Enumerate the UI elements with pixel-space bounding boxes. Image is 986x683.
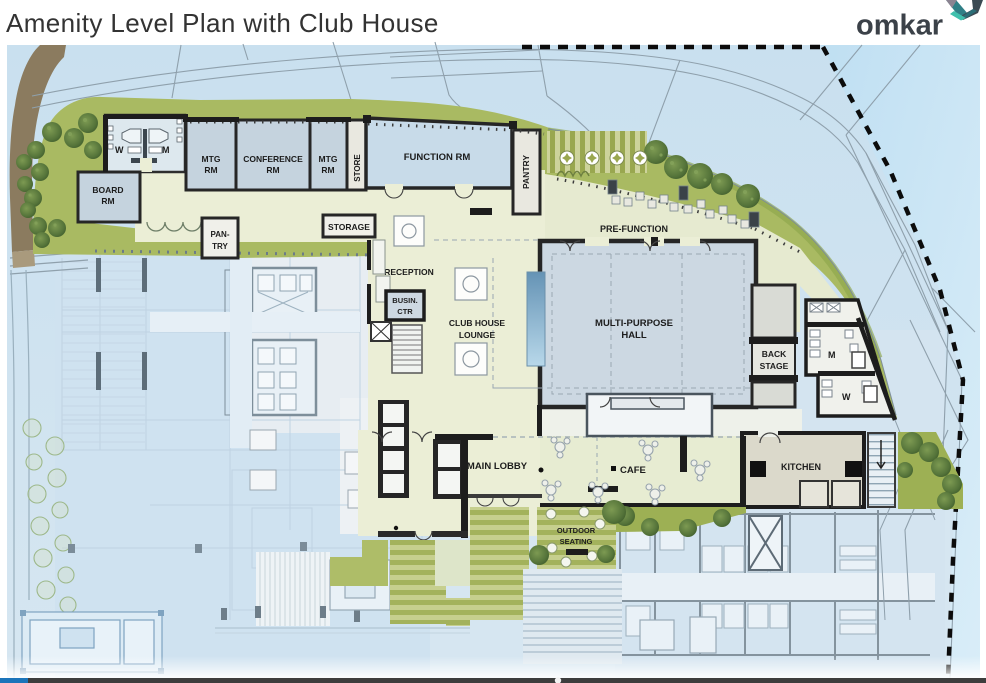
svg-text:PRE-FUNCTION: PRE-FUNCTION <box>600 224 668 234</box>
svg-text:MTG: MTG <box>202 154 221 164</box>
svg-text:STORE: STORE <box>353 154 362 182</box>
svg-text:PAN-: PAN- <box>211 230 230 239</box>
svg-text:KITCHEN: KITCHEN <box>781 462 821 472</box>
svg-text:TRY: TRY <box>212 242 228 251</box>
svg-text:CONFERENCE: CONFERENCE <box>243 154 303 164</box>
svg-text:MAIN LOBBY: MAIN LOBBY <box>467 461 528 472</box>
svg-text:BUSIN.: BUSIN. <box>392 296 417 305</box>
svg-text:M: M <box>162 145 170 155</box>
svg-text:BACK: BACK <box>762 349 787 359</box>
svg-text:omkar: omkar <box>856 10 943 42</box>
svg-text:OUTDOOR: OUTDOOR <box>557 526 596 535</box>
svg-text:HALL: HALL <box>621 330 647 341</box>
svg-text:BOARD: BOARD <box>92 185 123 195</box>
svg-text:RM: RM <box>321 165 334 175</box>
svg-text:M: M <box>828 350 836 360</box>
svg-text:W: W <box>115 145 124 155</box>
svg-text:Amenity Level Plan with Club H: Amenity Level Plan with Club House <box>6 8 439 38</box>
svg-text:CLUB HOUSE: CLUB HOUSE <box>449 318 506 328</box>
svg-text:PANTRY: PANTRY <box>521 155 531 189</box>
svg-text:CTR: CTR <box>397 307 413 316</box>
svg-text:RM: RM <box>101 196 114 206</box>
svg-text:SEATING: SEATING <box>560 537 593 546</box>
svg-text:W: W <box>842 392 851 402</box>
svg-text:CAFE: CAFE <box>620 465 646 476</box>
svg-text:STAGE: STAGE <box>760 361 789 371</box>
svg-text:RECEPTION: RECEPTION <box>384 267 434 277</box>
svg-text:MULTI-PURPOSE: MULTI-PURPOSE <box>595 318 673 329</box>
svg-text:LOUNGE: LOUNGE <box>459 330 496 340</box>
svg-text:MTG: MTG <box>319 154 338 164</box>
svg-text:FUNCTION RM: FUNCTION RM <box>404 152 471 163</box>
svg-text:RM: RM <box>204 165 217 175</box>
svg-text:STORAGE: STORAGE <box>328 222 370 232</box>
svg-text:RM: RM <box>266 165 279 175</box>
